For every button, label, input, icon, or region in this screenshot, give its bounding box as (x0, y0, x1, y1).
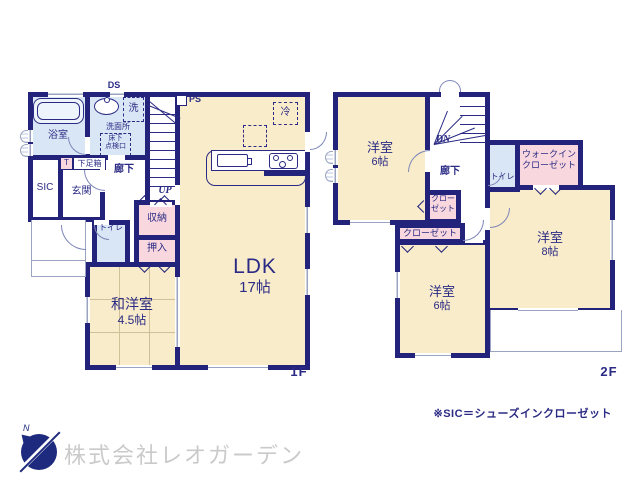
bathtub-inner (37, 102, 80, 120)
ds-label: DS (102, 80, 126, 91)
window (350, 220, 390, 225)
stairs-treads-2f (460, 98, 486, 150)
cupboard-box (243, 125, 267, 147)
kitchen-faucet (247, 158, 252, 165)
washbasin-faucet (104, 97, 110, 103)
wic-label: ウォークイン クローゼット (517, 149, 581, 171)
floorplan-2f: 洋室 6帖 DN 廊下 トイレ ウォークイン クローゼット クロー ゼット クロ… (333, 92, 623, 370)
window (305, 269, 310, 295)
hall-label-1f: 廊下 (107, 164, 141, 176)
sic-note: ※SIC＝シューズインクローゼット (340, 408, 612, 421)
window (333, 150, 338, 165)
door-gap (108, 155, 125, 160)
stove-burner (287, 155, 293, 161)
ps-box (176, 95, 187, 106)
window (415, 353, 451, 358)
toilet-label-1f: トイレ (92, 223, 130, 233)
hall-label-2f: 廊下 (433, 166, 467, 178)
stove-burner (279, 161, 286, 168)
stairs-top-gap (441, 92, 459, 97)
closet-h-label: クローゼット (397, 228, 463, 239)
window (395, 272, 400, 298)
window (28, 144, 33, 156)
floor1-label: 1F (286, 364, 312, 380)
bath-label: 浴室 (36, 130, 80, 142)
closet-v-label: クロー ゼット (427, 194, 459, 213)
balcony (490, 310, 622, 352)
shutter-box (325, 151, 333, 164)
stove-burner (273, 155, 279, 161)
compass-n-label: N (23, 423, 30, 434)
window (48, 92, 83, 97)
window (305, 207, 310, 233)
bed1-label: 洋室 6帖 (351, 140, 409, 169)
shoebox-t-label: T (60, 158, 73, 168)
window (110, 92, 124, 97)
floorplan-1f: 冷 洗 洗面所 床下 点検口 T 下足箱 (28, 92, 310, 370)
balcony-window (518, 308, 578, 313)
window (610, 220, 615, 260)
dn-label: DN (430, 134, 456, 146)
oshiire-label: 押入 (136, 243, 178, 255)
bed3-label: 洋室 8帖 (513, 230, 587, 259)
shutter-box (20, 130, 28, 143)
compass-icon: N (14, 424, 64, 474)
laundry-label: 洗 (123, 103, 144, 115)
window (333, 168, 338, 183)
kitchen-sink (217, 154, 248, 167)
kitchen-wall-bar (264, 170, 310, 176)
sic-label: SIC (30, 182, 60, 194)
washitsu-label: 和洋室 4.5帖 (88, 296, 176, 328)
fridge-label: 冷 (273, 107, 298, 119)
storage-label: 収納 (136, 213, 178, 225)
washroom-label: 洗面所 (96, 122, 140, 132)
window (116, 365, 152, 370)
window (28, 130, 33, 142)
window (208, 365, 268, 370)
shutter-box (325, 169, 333, 182)
stairs-top-arc (439, 80, 461, 92)
porch-step (31, 260, 86, 261)
bed2-label: 洋室 6帖 (407, 284, 477, 313)
ldk-backdoor-arc (310, 132, 327, 150)
toilet-label-2f: トイレ (485, 172, 520, 182)
floor2-label: 2F (596, 364, 622, 380)
company-name: 株式会社レオガーデン (64, 438, 304, 470)
shutter-box (20, 144, 28, 157)
underfloor-label: 床下 点検口 (100, 135, 131, 152)
ps-label: PS (189, 94, 211, 105)
entrance-label: 玄関 (65, 186, 98, 198)
up-label: UP (152, 185, 178, 197)
ldk-label: LDK 17帖 (210, 254, 300, 297)
